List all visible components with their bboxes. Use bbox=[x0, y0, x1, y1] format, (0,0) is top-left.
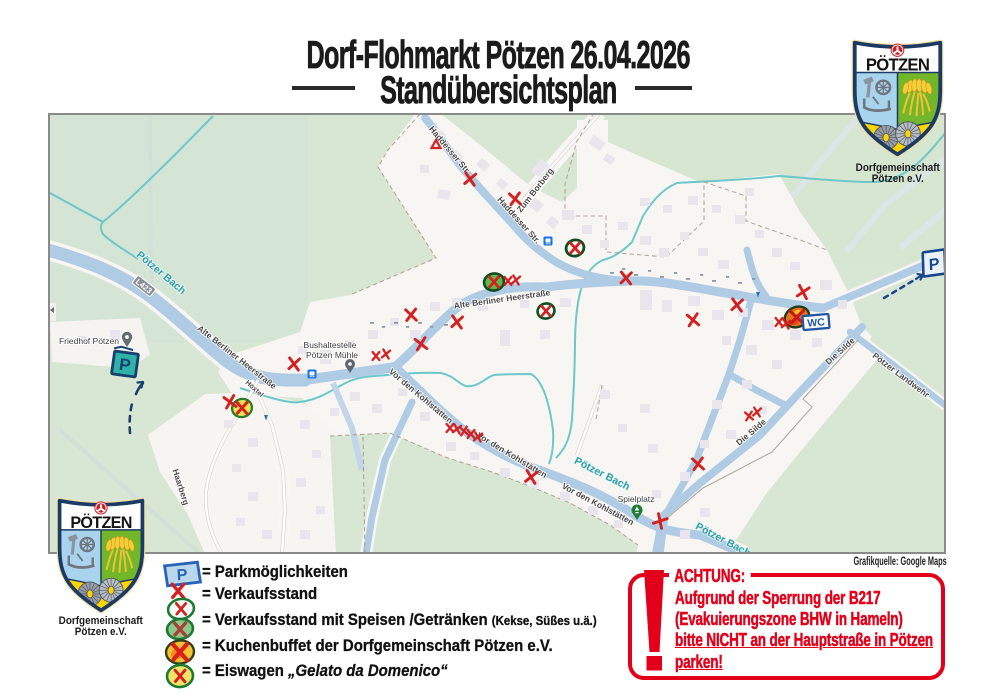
svg-text:Bushaltestelle: Bushaltestelle bbox=[304, 340, 357, 350]
svg-text:Pötzen Mühle: Pötzen Mühle bbox=[306, 350, 358, 360]
svg-text:Spielplatz: Spielplatz bbox=[618, 494, 655, 504]
svg-text:WC: WC bbox=[807, 316, 826, 330]
svg-text:P: P bbox=[928, 255, 939, 275]
svg-text:P: P bbox=[176, 567, 188, 585]
svg-text:Friedhof Pötzen: Friedhof Pötzen bbox=[59, 336, 119, 346]
svg-text:PÖTZEN: PÖTZEN bbox=[866, 55, 930, 74]
